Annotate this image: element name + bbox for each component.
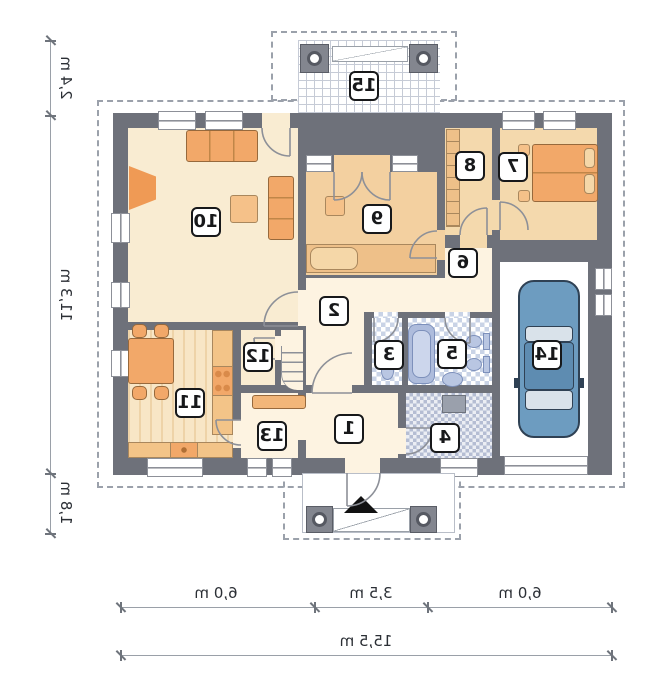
door-gap-bath: [445, 312, 470, 318]
bed-pillow-1: [584, 148, 595, 168]
corridor-strip: [364, 278, 492, 312]
door-gap-9-corridor: [437, 230, 445, 260]
room-label-14: 14: [532, 340, 562, 370]
toilet-tank-bath: [483, 333, 490, 350]
coffee-table: [230, 195, 258, 223]
window-left-1: [111, 213, 130, 243]
toilet-bath: [466, 335, 482, 348]
dim-label-left-middle: 11,3 m: [58, 260, 74, 330]
daybed-pillow: [310, 247, 358, 270]
window-top-bedroom-2: [543, 111, 576, 130]
room-label-2: 2: [319, 296, 349, 326]
porch-column-right: [410, 506, 437, 533]
room-label-6: 6: [448, 248, 478, 278]
window-left-2: [111, 282, 130, 308]
room-label-12: 12: [243, 342, 273, 372]
door-gap-hall-1: [312, 385, 352, 393]
bidet-tank: [483, 356, 490, 373]
french-door-gap: [334, 155, 390, 172]
room-label-5: 5: [437, 339, 467, 369]
car-windshield: [525, 390, 573, 410]
boiler: [442, 395, 466, 413]
room-label-11: 11: [175, 388, 205, 418]
chair-2: [154, 324, 169, 338]
terrace-column-right: [409, 44, 438, 73]
door-gap-6-7: [492, 200, 500, 230]
dim-label-bottom-1: 6,0 m: [181, 585, 251, 601]
entrance-arrow-icon: [344, 496, 378, 513]
room-label-15: 15: [349, 71, 379, 101]
dim-label-left-bottom: 1,8 m: [58, 468, 74, 538]
dim-line-total: [120, 655, 612, 656]
door-gap-living-terrace: [262, 113, 290, 128]
window-garage-right-2: [595, 294, 612, 316]
terrace-beam: [332, 46, 408, 62]
room-label-13: 13: [257, 421, 287, 451]
car-mirror-right: [578, 378, 584, 388]
chair-1: [132, 324, 147, 338]
kitchen-sink: [170, 442, 198, 458]
window-top-bedroom-1: [502, 111, 535, 130]
room-label-1: 1: [334, 414, 364, 444]
window-terrace-right: [392, 155, 418, 172]
sofa: [186, 130, 258, 162]
chair-3: [132, 386, 147, 400]
room-2-hall: [306, 278, 364, 385]
hall-cabinet: [252, 395, 306, 409]
porch-column-left: [306, 506, 333, 533]
window-terrace-left: [306, 155, 332, 172]
window-garage-right-1: [595, 268, 612, 290]
stairs: [281, 346, 303, 390]
room-label-4: 4: [430, 423, 460, 453]
window-bottom-hall-1: [247, 458, 267, 477]
chair-4: [154, 386, 169, 400]
dim-label-bottom-3: 6,0 m: [485, 585, 555, 601]
bathtub-inner: [412, 330, 431, 378]
room-label-7: 7: [498, 152, 528, 182]
door-gap-wc: [374, 312, 398, 318]
window-top-living-2: [205, 111, 243, 130]
room-label-10: 10: [191, 207, 221, 237]
dim-line-bottom: [120, 607, 612, 608]
window-bottom-hall-2: [272, 458, 292, 477]
garage-door: [504, 456, 588, 475]
dim-label-bottom-2: 3,5 m: [336, 585, 406, 601]
window-top-living-1: [158, 111, 196, 130]
floor-plan: 1 2 3 4 5 6 7 8 9 10 11 12 13 14 15 2,4 …: [0, 0, 654, 700]
nightstand-2: [518, 190, 530, 202]
bed-pillow-2: [584, 174, 595, 194]
room-label-8: 8: [455, 151, 485, 181]
desk: [325, 196, 345, 216]
room-label-9: 9: [362, 204, 392, 234]
kitchen-table: [128, 338, 174, 384]
door-gap-living-hall: [298, 290, 306, 326]
window-bottom-kitchen: [147, 458, 203, 477]
car-mirror-left: [514, 378, 520, 388]
bidet: [466, 358, 482, 371]
room-label-3: 3: [374, 340, 404, 370]
dim-label-left-top: 2,4 m: [58, 43, 74, 113]
terrace-column-left: [300, 44, 329, 73]
door-gap-1-4: [398, 428, 406, 454]
sofa-side: [268, 176, 294, 240]
washbasin: [442, 372, 463, 387]
cooktop: [212, 366, 233, 396]
dim-label-total: 15,5 m: [331, 633, 401, 649]
door-gap-13-11: [233, 420, 241, 448]
door-gap-6-8: [460, 235, 487, 248]
